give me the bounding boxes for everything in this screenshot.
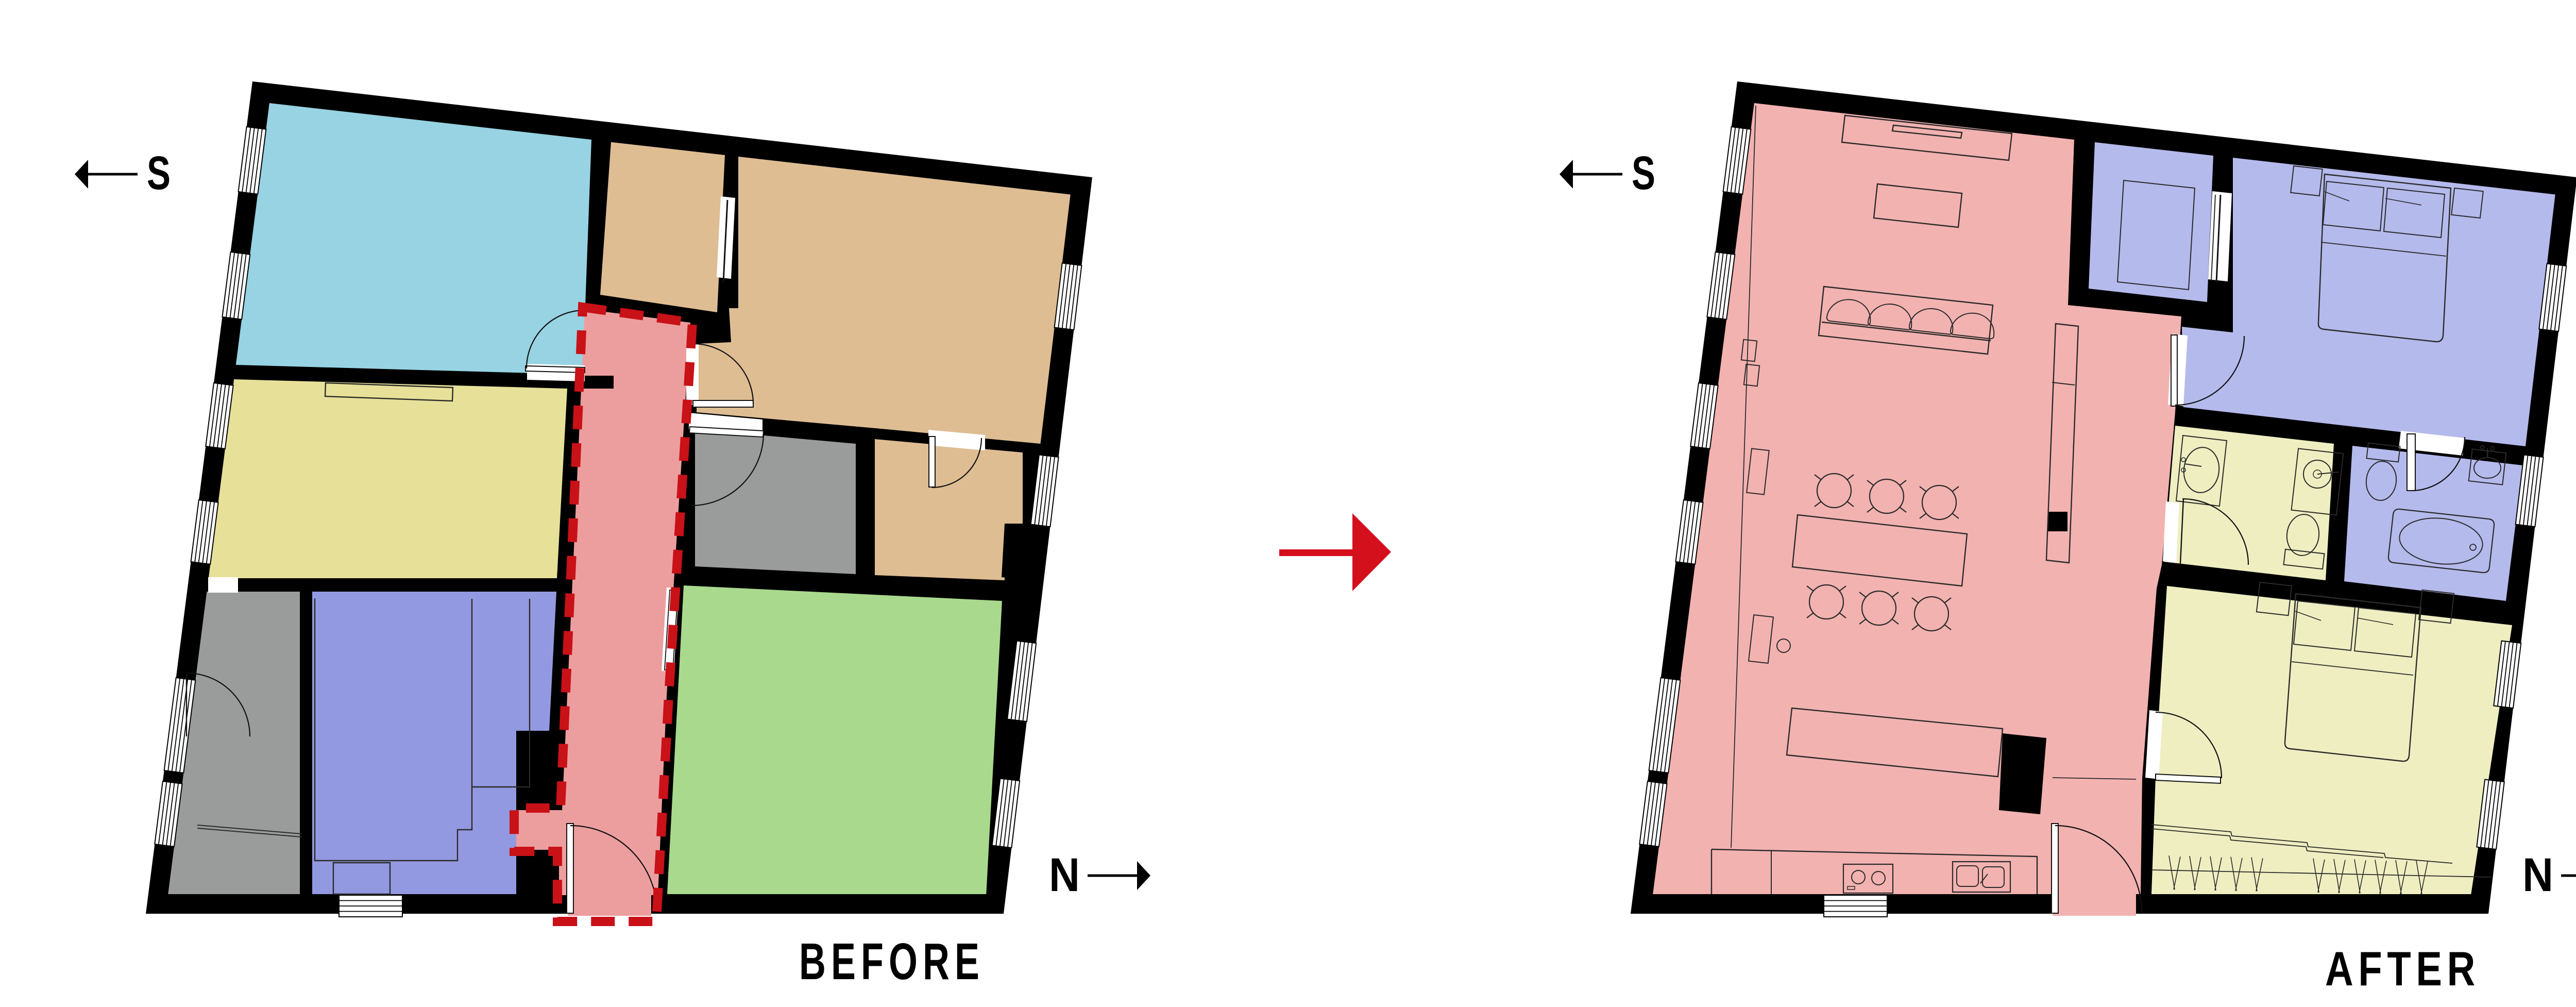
svg-text:BEFORE: BEFORE	[799, 933, 985, 991]
svg-text:N: N	[1049, 849, 1080, 901]
svg-text:N: N	[2522, 849, 2553, 901]
svg-text:AFTER: AFTER	[2325, 942, 2480, 996]
svg-text:S: S	[1632, 147, 1655, 199]
svg-text:S: S	[147, 147, 171, 199]
